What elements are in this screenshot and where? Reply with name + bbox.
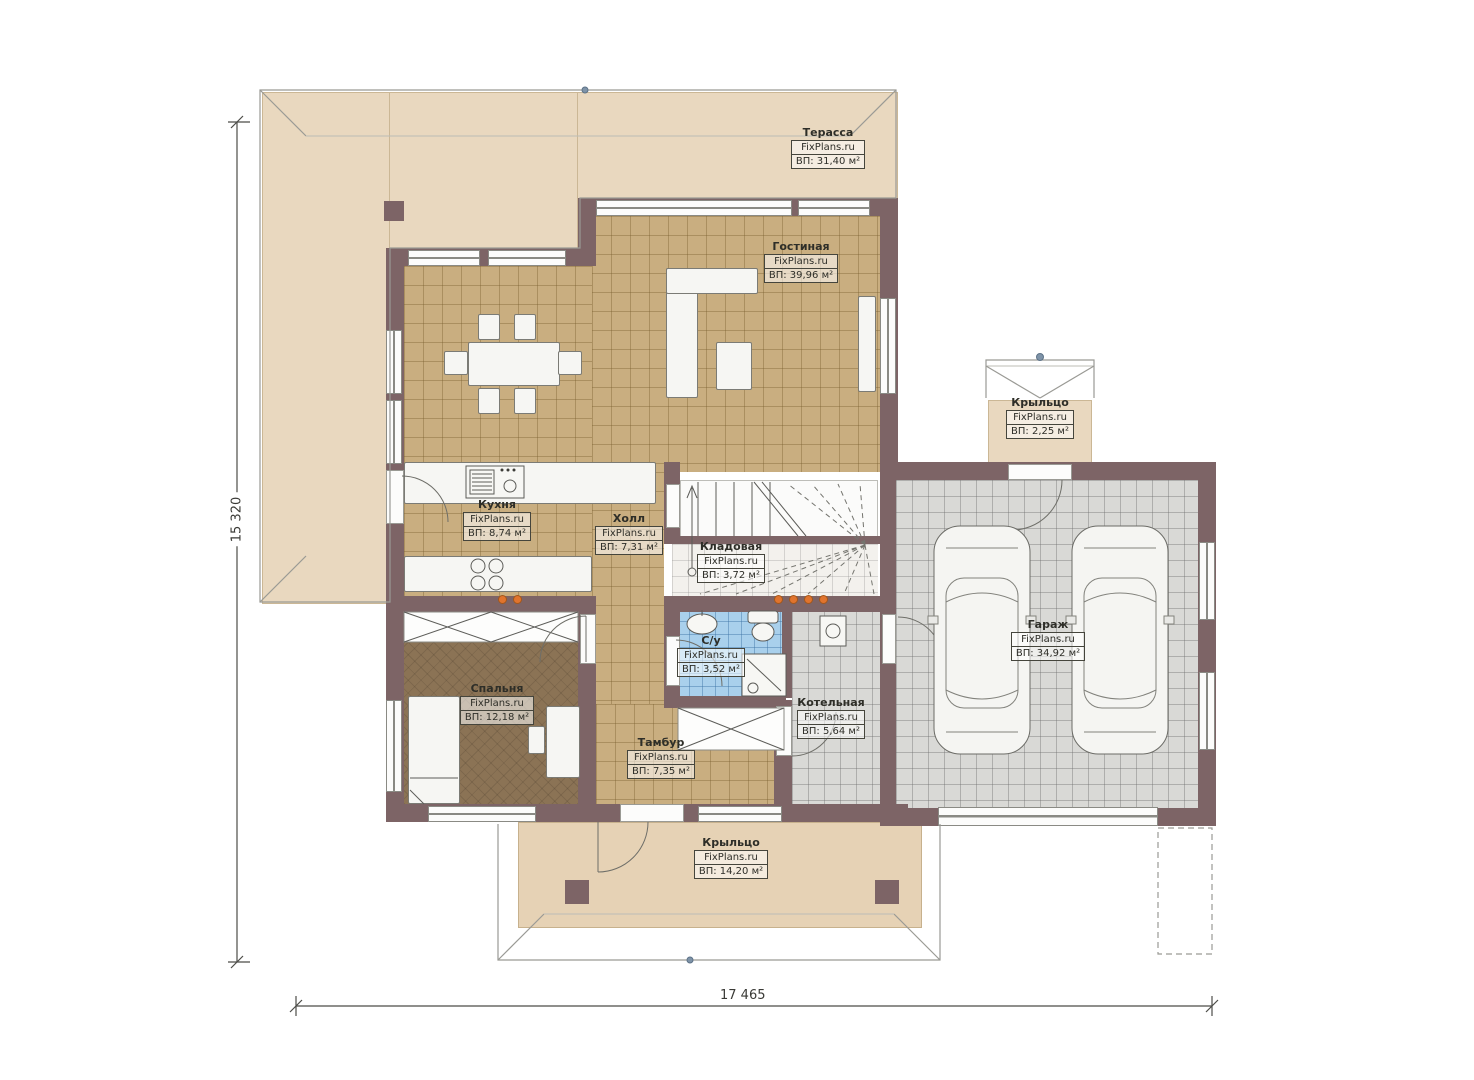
desk <box>546 706 580 778</box>
watermark-label: FixPlans.ru <box>1012 633 1084 646</box>
desk-chair <box>528 726 545 754</box>
kitchen-counter <box>404 556 592 592</box>
room-area-label: ВП: 5,64 м² <box>798 724 864 738</box>
window <box>798 200 870 216</box>
room-info-box: FixPlans.ru ВП: 3,72 м² <box>697 554 765 583</box>
room-info-box: FixPlans.ru ВП: 7,31 м² <box>595 526 663 555</box>
terrace-door-opening <box>386 470 404 524</box>
vertical-dimension-label: 15 320 <box>229 493 244 547</box>
coffee-table <box>716 342 752 390</box>
room-name-label: Крыльцо <box>992 396 1088 410</box>
window <box>1199 542 1215 620</box>
window <box>386 400 402 464</box>
stairs-floor <box>680 480 878 538</box>
dining-chair <box>478 314 500 340</box>
watermark-label: FixPlans.ru <box>765 255 837 268</box>
room-label-terrace: Терасса FixPlans.ru ВП: 31,40 м² <box>780 126 876 169</box>
hall-floor <box>592 472 664 706</box>
room-info-box: FixPlans.ru ВП: 5,64 м² <box>797 710 865 739</box>
bedroom-door-opening <box>580 614 596 664</box>
room-info-box: FixPlans.ru ВП: 14,20 м² <box>694 850 768 879</box>
horizontal-dimension-label: 17 465 <box>716 988 770 1003</box>
dining-chair <box>558 351 582 375</box>
room-area-label: ВП: 31,40 м² <box>792 154 864 168</box>
dining-chair <box>514 314 536 340</box>
room-label-porch-bottom: Крыльцо FixPlans.ru ВП: 14,20 м² <box>683 836 779 879</box>
room-name-label: Кухня <box>449 498 545 512</box>
room-info-box: FixPlans.ru ВП: 2,25 м² <box>1006 410 1074 439</box>
terrace-post <box>384 201 404 221</box>
room-label-kitchen: Кухня FixPlans.ru ВП: 8,74 м² <box>449 498 545 541</box>
utility-marker-dot <box>498 595 507 604</box>
utility-marker-dot <box>789 595 798 604</box>
room-area-label: ВП: 3,72 м² <box>698 568 764 582</box>
dining-chair <box>478 388 500 414</box>
watermark-label: FixPlans.ru <box>1007 411 1073 424</box>
porch-post <box>565 880 589 904</box>
dining-chair <box>444 351 468 375</box>
room-name-label: Тамбур <box>613 736 709 750</box>
sofa <box>666 268 758 294</box>
watermark-label: FixPlans.ru <box>596 527 662 540</box>
window <box>428 806 536 822</box>
window <box>386 700 402 792</box>
watermark-label: FixPlans.ru <box>628 751 694 764</box>
watermark-label: FixPlans.ru <box>461 697 533 710</box>
utility-marker-dot <box>774 595 783 604</box>
watermark-label: FixPlans.ru <box>464 513 530 526</box>
wall-segment <box>1198 462 1216 826</box>
room-area-label: ВП: 7,31 м² <box>596 540 662 554</box>
watermark-label: FixPlans.ru <box>695 851 767 864</box>
window <box>1199 672 1215 750</box>
room-name-label: Гараж <box>1000 618 1096 632</box>
room-info-box: FixPlans.ru ВП: 34,92 м² <box>1011 632 1085 661</box>
room-info-box: FixPlans.ru ВП: 12,18 м² <box>460 696 534 725</box>
room-area-label: ВП: 14,20 м² <box>695 864 767 878</box>
utility-marker-dot <box>819 595 828 604</box>
window <box>880 298 896 394</box>
terrace-sliding-door <box>596 200 792 216</box>
room-name-label: Спальня <box>449 682 545 696</box>
dining-chair <box>514 388 536 414</box>
room-area-label: ВП: 39,96 м² <box>765 268 837 282</box>
garage-gate <box>938 807 1158 826</box>
utility-marker-dot <box>513 595 522 604</box>
room-area-label: ВП: 8,74 м² <box>464 526 530 540</box>
utility-marker-dot <box>804 595 813 604</box>
floor-plan: Терасса FixPlans.ru ВП: 31,40 м² Гостина… <box>0 0 1474 1080</box>
room-label-pantry: Кладовая FixPlans.ru ВП: 3,72 м² <box>683 540 779 583</box>
wall-segment <box>386 596 596 612</box>
tv-stand <box>858 296 876 392</box>
watermark-label: FixPlans.ru <box>792 141 864 154</box>
dining-table <box>468 342 560 386</box>
terrace-floor <box>262 92 390 604</box>
room-info-box: FixPlans.ru ВП: 39,96 м² <box>764 254 838 283</box>
porch-top-roof-outline <box>986 354 1094 399</box>
room-label-porch-top: Крыльцо FixPlans.ru ВП: 2,25 м² <box>992 396 1088 439</box>
entrance-door-opening <box>620 804 684 822</box>
room-label-vestibule: Тамбур FixPlans.ru ВП: 7,35 м² <box>613 736 709 779</box>
window <box>698 806 782 822</box>
room-area-label: ВП: 12,18 м² <box>461 710 533 724</box>
room-label-garage: Гараж FixPlans.ru ВП: 34,92 м² <box>1000 618 1096 661</box>
room-area-label: ВП: 3,52 м² <box>678 662 744 676</box>
watermark-label: FixPlans.ru <box>698 555 764 568</box>
watermark-label: FixPlans.ru <box>798 711 864 724</box>
wall-segment <box>664 696 786 708</box>
room-name-label: Крыльцо <box>683 836 779 850</box>
room-info-box: FixPlans.ru ВП: 7,35 м² <box>627 750 695 779</box>
room-name-label: Котельная <box>783 696 879 710</box>
room-info-box: FixPlans.ru ВП: 8,74 м² <box>463 512 531 541</box>
room-area-label: ВП: 7,35 м² <box>628 764 694 778</box>
room-label-bathroom: С/у FixPlans.ru ВП: 3,52 м² <box>663 634 759 677</box>
room-name-label: Холл <box>581 512 677 526</box>
window <box>386 330 402 394</box>
watermark-label: FixPlans.ru <box>678 649 744 662</box>
wall-segment <box>664 596 880 612</box>
room-label-boiler: Котельная FixPlans.ru ВП: 5,64 м² <box>783 696 879 739</box>
room-area-label: ВП: 2,25 м² <box>1007 424 1073 438</box>
room-label-bedroom: Спальня FixPlans.ru ВП: 12,18 м² <box>449 682 545 725</box>
room-area-label: ВП: 34,92 м² <box>1012 646 1084 660</box>
room-name-label: Терасса <box>780 126 876 140</box>
porch-post <box>875 880 899 904</box>
wall-segment <box>782 608 792 698</box>
porch-door-opening <box>1008 464 1072 480</box>
boiler-garage-door-opening <box>882 614 896 664</box>
room-info-box: FixPlans.ru ВП: 31,40 м² <box>791 140 865 169</box>
room-label-living: Гостиная FixPlans.ru ВП: 39,96 м² <box>753 240 849 283</box>
window <box>488 250 566 266</box>
room-name-label: Гостиная <box>753 240 849 254</box>
room-info-box: FixPlans.ru ВП: 3,52 м² <box>677 648 745 677</box>
room-label-hall: Холл FixPlans.ru ВП: 7,31 м² <box>581 512 677 555</box>
window <box>408 250 480 266</box>
room-name-label: Кладовая <box>683 540 779 554</box>
room-name-label: С/у <box>663 634 759 648</box>
driveway-apron <box>1158 828 1212 954</box>
